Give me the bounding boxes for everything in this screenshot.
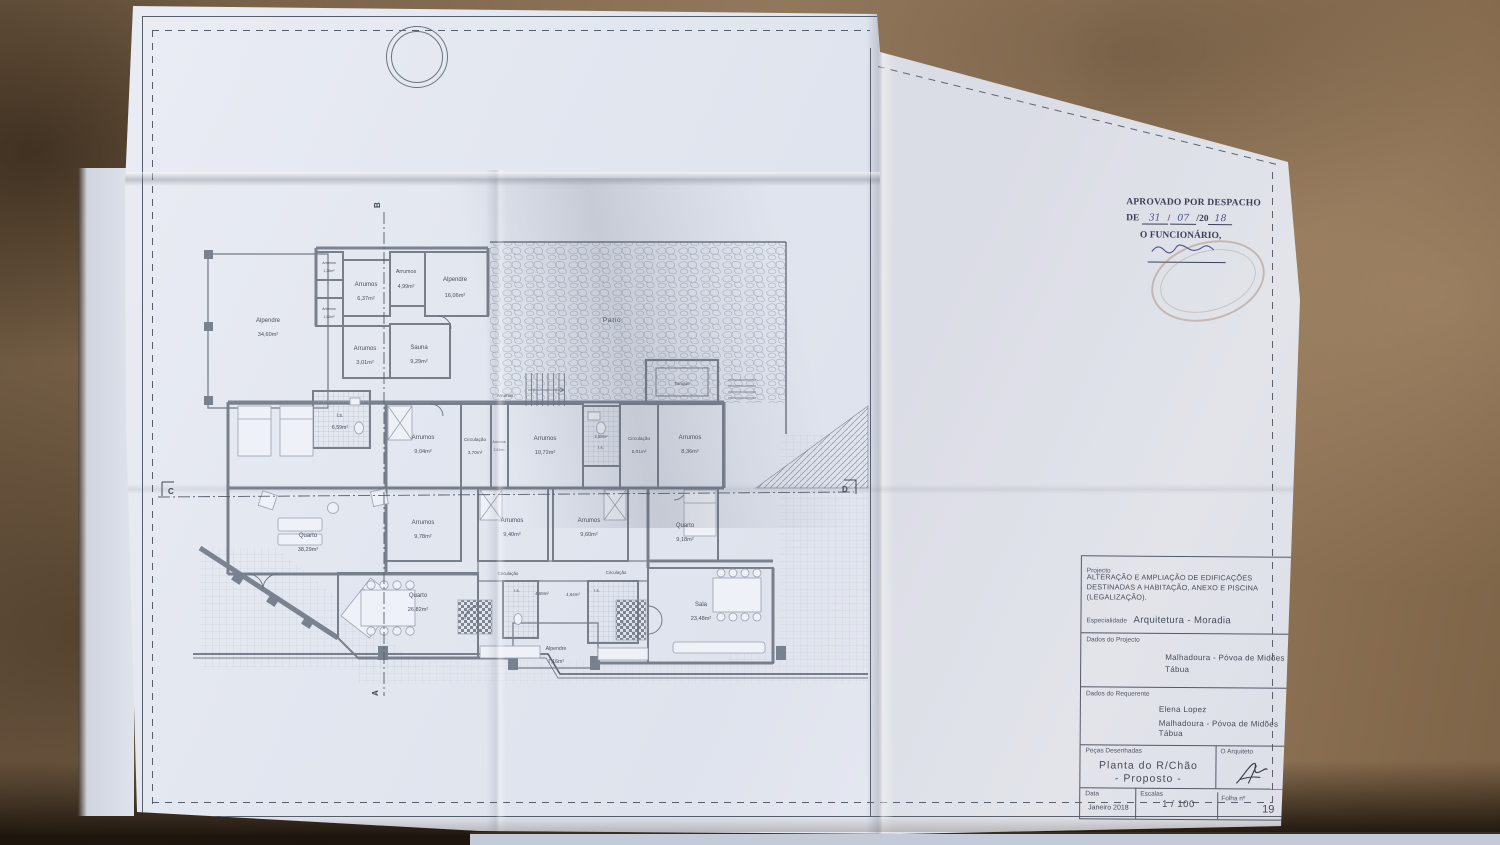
room-area: 9,04m² [414,449,432,455]
room-area: 9,29m² [410,359,428,365]
room-area: 9,40m² [503,532,521,538]
especialidade-label: Especialidade [1086,617,1127,624]
room-area: 4,99m² [398,284,415,290]
room-label: Quarto [676,523,695,529]
dados-projecto-line2: Tábua [1165,665,1189,674]
room-label: Quarto [409,593,428,599]
photo-of-floor-plan-sheet: { "stamp": { "approved_line": "APROVADO … [0,0,1500,845]
pecas-line2: - Proposto - [1085,772,1211,785]
room-label: Arrumos [497,393,514,398]
room-label: Circulação [498,571,519,576]
room-area: 26,82m² [408,607,429,613]
section-marker-c: C [168,487,174,496]
dados-requerente-label: Dados do Requerente [1086,690,1150,697]
room-area: 2,61m² [494,448,506,452]
room-label: Arrumos [578,518,601,524]
title-block: Projecto ALTERAÇÃO E AMPLIAÇÃO DE EDIFIC… [1079,555,1295,820]
pecas-label: Peças Desenhadas [1086,747,1142,754]
patio-label: Pátio [603,317,622,324]
room-label: Arrumos [492,440,505,444]
stamp-date-month: 07 [1170,213,1196,225]
section-marker-d: D [842,485,848,494]
room-area: 5,01m² [632,449,647,454]
room-area: 6,59m² [332,425,348,431]
room-label: Arrumos [412,520,435,526]
room-area: 8,36m² [681,449,699,455]
room-area: 4,64m² [566,592,580,597]
room-area: 3,01m² [356,360,374,366]
underlying-sheet-bottom-edge [470,832,1500,845]
room-label: Arrumos [534,436,557,442]
room-area: 9,60m² [580,532,598,538]
dados-projecto-line1: Malhadoura - Póvoa de Midões [1165,653,1285,663]
projecto-text: ALTERAÇÃO E AMPLIAÇÃO DE EDIFICAÇÕES DES… [1087,572,1287,604]
room-area: 1,26m² [323,269,335,273]
patio-stone-paving [490,242,786,403]
folha-label: Folha nº [1221,795,1245,802]
frame-top-solid [142,16,878,17]
especialidade-value: Arquitetura - Moradia [1133,615,1231,627]
folha-value: 19 [1262,804,1274,816]
room-label: I.s. [337,413,344,419]
room-label: Quarto [299,533,318,539]
room-label: Alpendre [443,277,468,283]
data-label: Data [1085,790,1099,797]
room-label: Alpendre [256,318,281,324]
stamp-de-label: DE [1126,213,1139,223]
dados-projecto-label: Dados do Projecto [1086,636,1140,643]
room-area: 23,48m² [691,616,712,622]
escalas-label: Escalas [1140,791,1163,798]
arquiteto-label: O Arquiteto [1221,748,1254,755]
room-label: I.s. [514,588,520,593]
data-value: Janeiro 2018 [1088,804,1129,811]
room-area: 9,18m² [676,537,694,543]
divider [1217,792,1218,819]
room-area: 1,52m² [323,315,335,319]
room-area: 4,59m² [535,591,549,596]
room-area: 2,58m² [594,434,608,439]
room-area: 34,60m² [258,332,279,338]
room-area: 6,37m² [357,296,375,302]
room-label: Arrumos [396,269,417,275]
room-label: Arrumos [322,261,336,265]
room-area: 10,72m² [535,450,556,456]
ramp-hatch [756,406,868,488]
room-area: 16,06m² [445,293,466,299]
room-area: 3,70m² [468,450,483,455]
requerente-line2: Tábua [1159,729,1183,738]
requerente-line1: Malhadoura - Póvoa de Midões [1159,719,1279,729]
room-label: Circulação [606,570,627,575]
room-label: I.s. [598,445,604,450]
pecas-line1: Planta do R/Chão [1085,759,1211,772]
well-circle-symbol [386,26,448,88]
tanque-label: Tanque [674,381,690,387]
room-area: 7,16m² [548,659,564,665]
floor-plan: C D B A Alpendre34,60m² Arrumos1,26m² Ar… [128,176,890,738]
divider [1081,744,1293,746]
room-label: Circulação [628,436,651,441]
room-label: Arrumos [412,435,435,441]
room-label: Circulação [464,437,487,442]
room-label: Arrumos [322,307,336,311]
divider [1215,745,1216,788]
room-label: Arrumos [679,435,702,441]
stamp-approved-text: APROVADO POR DESPACHO [1126,197,1286,208]
divider [1080,787,1292,789]
section-marker-b: B [373,202,382,208]
section-marker-a: A [371,690,380,696]
room-label: Arrumos [354,346,377,352]
stamp-date-line: DE 31/07/2018 [1126,212,1286,225]
room-area: 9,78m² [414,534,432,540]
room-label: I.s. [594,588,600,593]
room-label: Arrumos [355,282,378,288]
room-label: Sauna [410,345,428,351]
divider [1081,632,1293,634]
requerente-nome: Elena Lopez [1159,705,1207,714]
frame-top-dashed [152,30,870,31]
stamp-year-prefix: /20 [1196,214,1208,224]
room-label: Sala [695,602,708,608]
room-label: Alpendre [546,646,567,652]
divider [1081,686,1293,688]
room-label: Arrumos [501,518,524,524]
room-area: 38,29m² [298,547,319,553]
escalas-value: 1 / 100 [1162,799,1195,810]
stamp-date-day: 31 [1142,212,1168,224]
divider [1135,788,1136,819]
stamp-date-year: 18 [1208,213,1232,225]
